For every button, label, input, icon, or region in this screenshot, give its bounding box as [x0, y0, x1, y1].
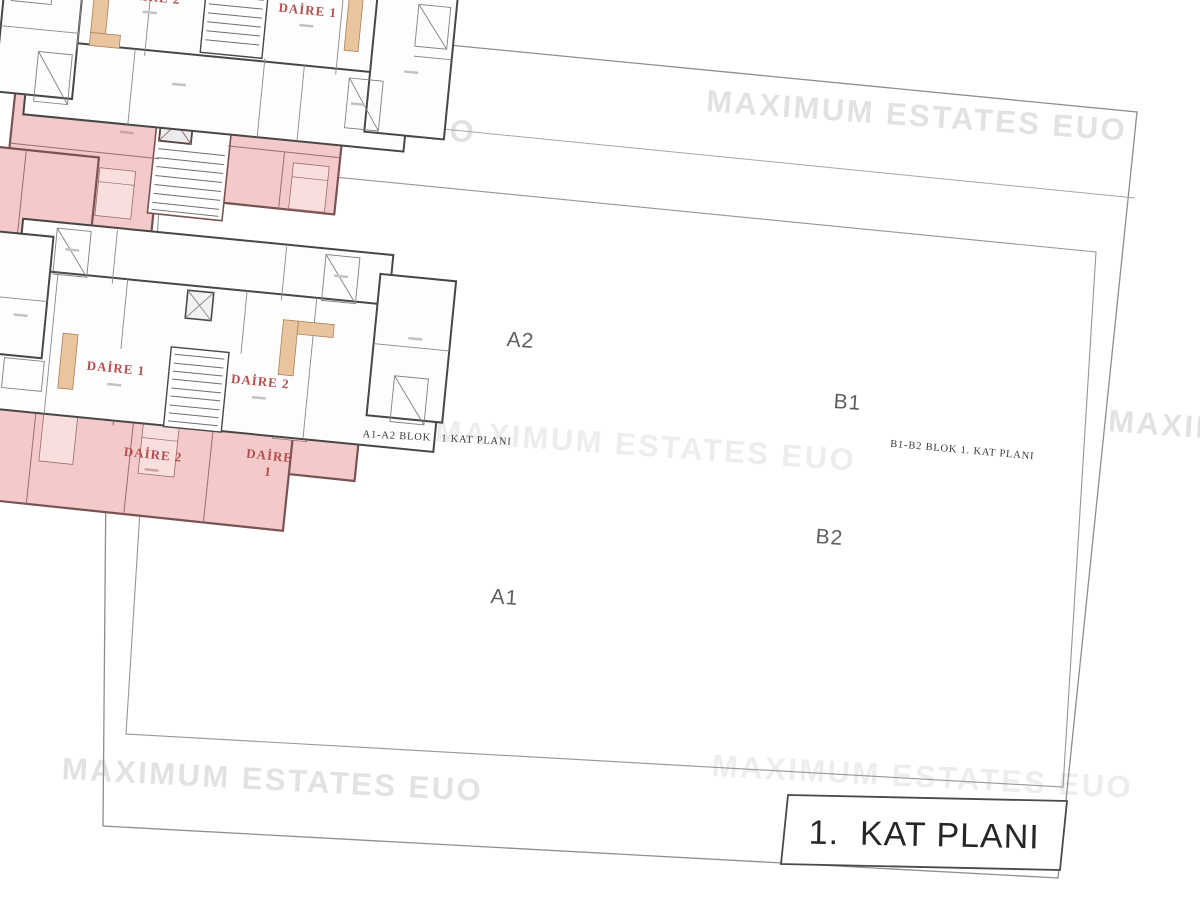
- unit-label-a1-daire1-line2: 1: [264, 464, 273, 480]
- floor-plan-sheet: MAXIMUM ESTATES EUO MAXIMUM ESTATES EUO …: [0, 0, 1200, 900]
- b1-right-wing: [364, 0, 458, 139]
- floor-plan-drawing: MAXIMUM ESTATES EUO MAXIMUM ESTATES EUO …: [0, 0, 1200, 900]
- b1-left-wing: [0, 0, 85, 99]
- title-block: 1. KAT PLANI: [781, 795, 1067, 870]
- sheet-title: 1. KAT PLANI: [808, 814, 1040, 857]
- b2-right-wing: [367, 274, 456, 423]
- b1-kitchen-left-2: [89, 32, 120, 48]
- watermark-mid-right-partial: MAXIMUM ESTATES EUO: [1107, 403, 1200, 467]
- stairwell-b2: [164, 347, 230, 432]
- block-label-a2: A2: [506, 328, 535, 353]
- block-label-b2: B2: [815, 525, 844, 550]
- block-label-a1: A1: [490, 585, 519, 610]
- block-label-b1: B1: [833, 390, 862, 415]
